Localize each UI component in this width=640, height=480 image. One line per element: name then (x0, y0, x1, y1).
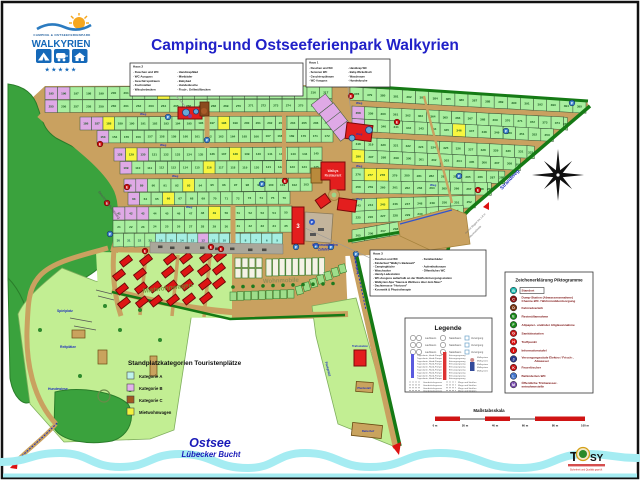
svg-text:305: 305 (469, 160, 474, 164)
svg-text:Sanitätsstation: Sanitätsstation (522, 332, 544, 336)
svg-text:- Hundedusche: - Hundedusche (177, 83, 198, 87)
svg-text:272: 272 (261, 104, 266, 108)
svg-text:Weg: Weg (172, 174, 178, 178)
svg-text:Wege und Straßen: Wege und Straßen (458, 384, 477, 387)
svg-text:341: 341 (394, 125, 399, 129)
svg-text:Müllsystem: Müllsystem (477, 359, 488, 362)
svg-text:Wohnmobilhafen: Wohnmobilhafen (312, 243, 338, 247)
svg-text:279: 279 (392, 173, 397, 177)
svg-text:261: 261 (393, 186, 398, 190)
svg-text:166: 166 (254, 134, 259, 138)
svg-text:Behinderten-WC: Behinderten-WC (522, 374, 547, 378)
svg-text:384: 384 (433, 97, 438, 101)
svg-text:67: 67 (178, 197, 182, 201)
svg-text:- Wäschebecken: - Wäschebecken (133, 88, 156, 92)
svg-text:206: 206 (313, 121, 318, 125)
svg-text:161: 161 (195, 135, 200, 139)
svg-text:Maßstabsskala: Maßstabsskala (473, 408, 505, 413)
svg-text:26: 26 (177, 225, 181, 229)
svg-text:347: 347 (469, 129, 474, 133)
svg-text:287: 287 (490, 175, 495, 179)
svg-text:Entsorgungsweg: Entsorgungsweg (449, 374, 466, 377)
svg-text:Entsorgungsweg: Entsorgungsweg (449, 366, 466, 369)
svg-text:Versorgung: Versorgung (471, 344, 484, 347)
svg-text:136: 136 (210, 152, 215, 156)
svg-text:Nadelbaum: Nadelbaum (449, 344, 461, 347)
svg-text:48: 48 (201, 211, 205, 215)
svg-text:55: 55 (284, 211, 288, 215)
svg-text:Laubbaum: Laubbaum (425, 351, 436, 354)
svg-text:31: 31 (127, 239, 131, 243)
svg-text:323: 323 (418, 145, 423, 149)
svg-text:137: 137 (221, 152, 226, 156)
svg-text:229: 229 (405, 213, 410, 217)
svg-text:322: 322 (406, 144, 411, 148)
svg-text:Pferdestall: Pferdestall (357, 386, 371, 390)
svg-text:- Waschraum: - Waschraum (348, 74, 365, 78)
svg-text:255: 255 (49, 104, 54, 108)
svg-text:385: 385 (446, 97, 451, 101)
svg-text:Feuerlöscher: Feuerlöscher (522, 366, 542, 370)
svg-text:326: 326 (456, 147, 461, 151)
svg-text:353: 353 (545, 133, 550, 137)
svg-text:- Fisch-, Grillmüllbecken: - Fisch-, Grillmüllbecken (177, 88, 211, 92)
svg-text:359: 359 (368, 111, 373, 115)
svg-text:258: 258 (86, 104, 91, 108)
svg-text:- Mietbäder: - Mietbäder (177, 74, 193, 78)
svg-text:343: 343 (419, 127, 424, 131)
svg-text:380: 380 (380, 94, 385, 98)
svg-text:23: 23 (141, 225, 145, 229)
svg-text:263: 263 (149, 104, 154, 108)
svg-text:216: 216 (311, 91, 316, 95)
svg-text:346: 346 (456, 129, 461, 133)
svg-text:14: 14 (180, 239, 184, 243)
svg-text:74: 74 (259, 196, 263, 200)
svg-text:Entsorgungsweg: Entsorgungsweg (449, 354, 466, 357)
svg-text:Weg: Weg (160, 143, 166, 147)
svg-text:191: 191 (141, 122, 146, 126)
svg-text:168: 168 (277, 134, 282, 138)
svg-text:278: 278 (380, 173, 385, 177)
svg-text:199: 199 (233, 121, 238, 125)
svg-text:45: 45 (165, 211, 169, 215)
svg-text:- Familienbäder: - Familienbäder (422, 257, 444, 261)
svg-text:Tageskarte, Hand-Pumpe: Tageskarte, Hand-Pumpe (417, 374, 443, 377)
svg-text:116: 116 (207, 166, 212, 170)
svg-text:30: 30 (225, 224, 229, 228)
svg-text:- Geschirrspülraum: - Geschirrspülraum (133, 79, 160, 83)
svg-text:E: E (477, 188, 479, 192)
svg-text:43: 43 (141, 212, 145, 216)
svg-text:251: 251 (454, 200, 459, 204)
svg-text:Zufahrt: Zufahrt (318, 248, 330, 252)
svg-text:I: I (513, 349, 514, 353)
svg-text:50: 50 (225, 211, 229, 215)
svg-text:261: 261 (124, 104, 129, 108)
svg-text:Spielplatz: Spielplatz (57, 309, 73, 313)
svg-text:115: 115 (195, 166, 200, 170)
svg-text:72: 72 (236, 196, 240, 200)
svg-text:30: 30 (117, 239, 121, 243)
svg-text:P: P (311, 220, 314, 225)
svg-text:21: 21 (117, 225, 121, 229)
svg-text:319: 319 (368, 142, 373, 146)
svg-text:217: 217 (323, 91, 328, 95)
svg-text:40 m: 40 m (492, 424, 499, 428)
svg-text:Tageskarte, Hand-Pumpe: Tageskarte, Hand-Pumpe (417, 363, 443, 366)
svg-text:98: 98 (246, 183, 250, 187)
svg-text:388: 388 (485, 99, 490, 103)
svg-text:24: 24 (153, 225, 157, 229)
svg-text:202: 202 (267, 121, 272, 125)
svg-text:8: 8 (245, 239, 247, 243)
svg-text:34: 34 (272, 224, 276, 228)
svg-text:340: 340 (381, 125, 386, 129)
svg-text:362: 362 (405, 113, 410, 117)
svg-text:258: 258 (356, 185, 361, 189)
svg-text:281: 281 (417, 174, 422, 178)
svg-text:Weg: Weg (430, 183, 436, 187)
svg-text:192: 192 (152, 121, 157, 125)
svg-text:196: 196 (198, 121, 203, 125)
svg-text:28: 28 (201, 224, 205, 228)
svg-text:200: 200 (244, 121, 249, 125)
svg-text:352: 352 (532, 132, 537, 136)
svg-text:entnahmestelle: entnahmestelle (522, 385, 545, 389)
svg-text:324: 324 (431, 145, 436, 149)
svg-text:140: 140 (256, 152, 261, 156)
svg-text:321: 321 (393, 144, 398, 148)
svg-text:7: 7 (255, 239, 257, 243)
svg-text:379: 379 (367, 93, 372, 97)
svg-text:Walkys: Walkys (328, 169, 339, 173)
svg-text:Abwasser: Abwasser (522, 359, 550, 363)
svg-text:145: 145 (314, 152, 319, 156)
svg-text:75: 75 (271, 196, 275, 200)
svg-text:E: E (144, 249, 146, 253)
svg-text:22: 22 (129, 225, 133, 229)
svg-text:112: 112 (159, 166, 164, 170)
svg-text:382: 382 (406, 95, 411, 99)
svg-text:53: 53 (260, 211, 264, 215)
svg-text:171: 171 (313, 134, 318, 138)
svg-text:302: 302 (431, 158, 436, 162)
svg-text:195: 195 (187, 121, 192, 125)
svg-text:187: 187 (95, 122, 100, 126)
svg-text:144: 144 (302, 152, 307, 156)
svg-text:Tageskarte, Hand-Pumpe: Tageskarte, Hand-Pumpe (417, 377, 443, 380)
svg-text:Weg: Weg (356, 197, 362, 201)
svg-text:46: 46 (177, 211, 181, 215)
svg-text:366: 366 (455, 116, 460, 120)
svg-text:367: 367 (468, 117, 473, 121)
svg-text:308: 308 (507, 162, 512, 166)
svg-text:207: 207 (381, 229, 386, 233)
svg-text:Entsorgungsweg: Entsorgungsweg (449, 363, 466, 366)
svg-text:128: 128 (117, 153, 122, 157)
svg-text:Grundstücksgrenze: Grundstücksgrenze (423, 387, 443, 390)
svg-text:71: 71 (225, 196, 229, 200)
svg-text:345: 345 (444, 128, 449, 132)
svg-text:- Geschirrspülraum: - Geschirrspülraum (309, 74, 334, 78)
svg-text:262: 262 (136, 104, 141, 108)
svg-text:65: 65 (155, 197, 159, 201)
svg-text:227: 227 (380, 214, 385, 218)
svg-text:155: 155 (124, 135, 129, 139)
svg-text:11: 11 (212, 239, 216, 243)
svg-text:259: 259 (368, 185, 373, 189)
svg-text:298: 298 (381, 156, 386, 160)
svg-text:64: 64 (144, 197, 148, 201)
svg-text:153: 153 (100, 135, 105, 139)
svg-text:92: 92 (175, 183, 179, 187)
svg-text:Entsorgungsweg: Entsorgungsweg (449, 357, 466, 360)
svg-text:365: 365 (443, 115, 448, 119)
svg-text:Legende: Legende (434, 325, 461, 332)
svg-text:63: 63 (132, 197, 136, 201)
svg-text:266: 266 (454, 187, 459, 191)
svg-text:301: 301 (419, 157, 424, 161)
svg-text:Versorgung: Versorgung (471, 337, 484, 340)
svg-text:206: 206 (368, 231, 373, 235)
svg-text:303: 303 (444, 159, 449, 163)
svg-text:Tageskarte, Hand-Pumpe: Tageskarte, Hand-Pumpe (417, 357, 443, 360)
svg-text:Tageskarte, Hand-Pumpe: Tageskarte, Hand-Pumpe (417, 369, 443, 372)
svg-text:Tageskarte, Hand-Pumpe: Tageskarte, Hand-Pumpe (417, 354, 443, 357)
svg-text:Entsorgungsweg: Entsorgungsweg (449, 369, 466, 372)
svg-text:- Duschen und WC: - Duschen und WC (309, 66, 333, 70)
svg-text:10: 10 (223, 239, 227, 243)
svg-text:167: 167 (266, 134, 271, 138)
svg-text:Nadelbaum: Nadelbaum (449, 337, 461, 340)
svg-text:Fahrradverleih: Fahrradverleih (522, 306, 544, 310)
svg-text:363: 363 (418, 114, 423, 118)
svg-text:D: D (512, 306, 515, 310)
svg-text:304: 304 (457, 159, 462, 163)
svg-text:123: 123 (290, 165, 295, 169)
svg-text:29: 29 (213, 224, 217, 228)
svg-text:358: 358 (356, 111, 361, 115)
svg-text:- WC-Ausguss: - WC-Ausguss (309, 79, 328, 83)
svg-text:378: 378 (354, 92, 359, 96)
svg-text:- WC-Ausguss: - WC-Ausguss (133, 74, 153, 78)
svg-text:Treffpunkt: Treffpunkt (522, 340, 537, 344)
svg-text:Reitplätze: Reitplätze (60, 345, 76, 349)
svg-text:282: 282 (429, 174, 434, 178)
svg-text:186: 186 (83, 122, 88, 126)
svg-text:91: 91 (163, 184, 167, 188)
svg-text:E: E (284, 179, 286, 183)
svg-text:245: 245 (380, 203, 385, 207)
svg-text:73: 73 (248, 196, 252, 200)
svg-text:E: E (396, 120, 398, 124)
svg-text:Weg: Weg (140, 112, 146, 116)
svg-text:Müllsystem: Müllsystem (477, 366, 488, 369)
svg-text:Sicherheit und Qualität geprüf: Sicherheit und Qualität geprüft (570, 469, 603, 472)
svg-text:WALKYRIEN: WALKYRIEN (32, 39, 91, 50)
svg-text:69: 69 (201, 197, 205, 201)
svg-text:E: E (126, 185, 128, 189)
svg-text:190: 190 (129, 122, 134, 126)
svg-text:299: 299 (394, 156, 399, 160)
svg-text:198: 198 (221, 121, 226, 125)
svg-text:31: 31 (237, 224, 241, 228)
svg-text:118: 118 (230, 165, 235, 169)
svg-text:196: 196 (61, 91, 66, 95)
svg-text:387: 387 (472, 99, 477, 103)
svg-text:260: 260 (111, 104, 116, 108)
svg-text:Trafostation: Trafostation (352, 344, 368, 348)
svg-text:259: 259 (99, 104, 104, 108)
svg-text:390: 390 (511, 101, 516, 105)
svg-text:197: 197 (210, 121, 215, 125)
svg-text:- Handicap WC: - Handicap WC (348, 66, 367, 70)
svg-text:Lübecker Bucht: Lübecker Bucht (182, 450, 241, 459)
svg-text:93: 93 (187, 183, 191, 187)
svg-text:32: 32 (138, 239, 142, 243)
svg-text:328: 328 (481, 148, 486, 152)
svg-text:H: H (512, 340, 515, 344)
svg-text:E: E (99, 142, 101, 146)
svg-text:370: 370 (505, 119, 510, 123)
svg-text:158: 158 (159, 135, 164, 139)
svg-text:129: 129 (129, 153, 134, 157)
svg-text:244: 244 (368, 203, 373, 207)
svg-text:94: 94 (199, 183, 203, 187)
svg-text:226: 226 (368, 215, 373, 219)
svg-text:342: 342 (406, 126, 411, 130)
svg-text:208: 208 (393, 227, 398, 231)
svg-text:CAMPING & OSTSEEFERIENPARK: CAMPING & OSTSEEFERIENPARK (33, 33, 91, 37)
svg-text:330: 330 (506, 149, 511, 153)
svg-text:Haus 1: Haus 1 (309, 61, 319, 65)
svg-text:M: M (512, 383, 515, 387)
svg-text:- Babybad: - Babybad (177, 79, 191, 83)
svg-text:268: 268 (211, 104, 216, 108)
svg-text:381: 381 (393, 94, 398, 98)
svg-text:201: 201 (256, 121, 261, 125)
svg-text:Laubbaum: Laubbaum (425, 337, 436, 340)
svg-text:329: 329 (493, 149, 498, 153)
svg-text:386: 386 (459, 98, 464, 102)
svg-text:60 m: 60 m (522, 424, 529, 428)
svg-text:135: 135 (198, 152, 203, 156)
svg-text:198: 198 (86, 91, 91, 95)
svg-text:277: 277 (368, 173, 373, 177)
svg-text:80 m: 80 m (552, 424, 559, 428)
svg-text:Entsorgungsweg: Entsorgungsweg (449, 377, 466, 380)
svg-text:52: 52 (248, 211, 252, 215)
svg-text:296: 296 (356, 154, 361, 158)
svg-text:306: 306 (482, 161, 487, 165)
svg-text:Chemie-WC / Wohnmobilentsorgun: Chemie-WC / Wohnmobilentsorgung (522, 299, 576, 303)
svg-text:393: 393 (551, 103, 556, 107)
svg-text:Müllsystem: Müllsystem (477, 356, 488, 359)
svg-text:156: 156 (136, 135, 141, 139)
svg-text:44: 44 (153, 212, 157, 216)
svg-text:Haus 3: Haus 3 (373, 252, 383, 256)
svg-text:Wege und Straßen: Wege und Straßen (458, 387, 477, 390)
svg-text:B: B (512, 289, 515, 293)
svg-text:Wege und Straßen: Wege und Straßen (458, 390, 477, 393)
svg-text:256: 256 (61, 104, 66, 108)
svg-text:325: 325 (443, 146, 448, 150)
svg-text:250: 250 (442, 201, 447, 205)
svg-text:97: 97 (234, 183, 238, 187)
svg-text:Standplatzkategorien Touristen: Standplatzkategorien Touristenplätze (128, 360, 242, 367)
svg-text:13: 13 (191, 239, 195, 243)
svg-text:109: 109 (123, 166, 128, 170)
svg-text:172: 172 (325, 134, 330, 138)
svg-text:110: 110 (135, 166, 140, 170)
svg-text:E: E (210, 245, 212, 249)
svg-text:117: 117 (219, 165, 224, 169)
svg-text:132: 132 (163, 152, 168, 156)
svg-text:257: 257 (74, 104, 79, 108)
svg-text:27: 27 (189, 225, 193, 229)
svg-text:100 m: 100 m (581, 424, 589, 428)
svg-text:- Kochstellen: - Kochstellen (133, 83, 151, 87)
svg-text:121: 121 (266, 165, 271, 169)
svg-text:J: J (513, 357, 515, 361)
svg-text:262: 262 (405, 186, 410, 190)
svg-text:Restaurant: Restaurant (325, 174, 343, 178)
svg-text:300: 300 (406, 157, 411, 161)
svg-text:193: 193 (164, 121, 169, 125)
svg-text:Hundewiese: Hundewiese (48, 387, 68, 391)
svg-text:Camping-und Ostseeferienpark W: Camping-und Ostseeferienpark Walkyrien (151, 37, 459, 54)
svg-text:- Baby-Wickeltisch: - Baby-Wickeltisch (348, 70, 372, 74)
svg-text:Versorgung: Versorgung (471, 351, 484, 354)
svg-text:249: 249 (430, 201, 435, 205)
svg-text:134: 134 (187, 152, 192, 156)
svg-text:32: 32 (248, 224, 252, 228)
svg-text:141: 141 (267, 152, 272, 156)
svg-text:280: 280 (404, 174, 409, 178)
svg-text:139: 139 (244, 152, 249, 156)
svg-text:12: 12 (201, 239, 205, 243)
svg-text:286: 286 (478, 175, 483, 179)
svg-text:Altpapier- und/oder Altglasann: Altpapier- und/oder Altglasannahme (522, 323, 575, 327)
svg-text:SY: SY (590, 453, 604, 464)
svg-text:5: 5 (276, 239, 278, 243)
svg-text:Kategorie B: Kategorie B (139, 386, 163, 391)
svg-text:351: 351 (519, 132, 524, 136)
svg-text:285: 285 (465, 175, 470, 179)
svg-text:392: 392 (538, 102, 543, 106)
svg-text:15: 15 (170, 239, 174, 243)
svg-text:Entsorgungsweg: Entsorgungsweg (449, 371, 466, 374)
svg-text:- Kosmetik & Physiotherapie: - Kosmetik & Physiotherapie (373, 287, 411, 291)
svg-text:270: 270 (236, 104, 241, 108)
svg-text:275: 275 (298, 104, 303, 108)
svg-text:- Hundedusche: - Hundedusche (348, 79, 368, 83)
svg-text:361: 361 (393, 113, 398, 117)
svg-text:197: 197 (74, 91, 79, 95)
svg-text:51: 51 (237, 211, 241, 215)
svg-text:35: 35 (284, 224, 288, 228)
svg-text:47: 47 (189, 211, 193, 215)
svg-text:E: E (220, 247, 222, 251)
svg-text:119: 119 (242, 165, 247, 169)
svg-text:66: 66 (167, 197, 171, 201)
svg-text:389: 389 (498, 100, 503, 104)
svg-text:111: 111 (147, 166, 152, 170)
svg-text:102: 102 (292, 183, 297, 187)
svg-text:372: 372 (530, 120, 535, 124)
svg-text:394: 394 (564, 104, 569, 108)
